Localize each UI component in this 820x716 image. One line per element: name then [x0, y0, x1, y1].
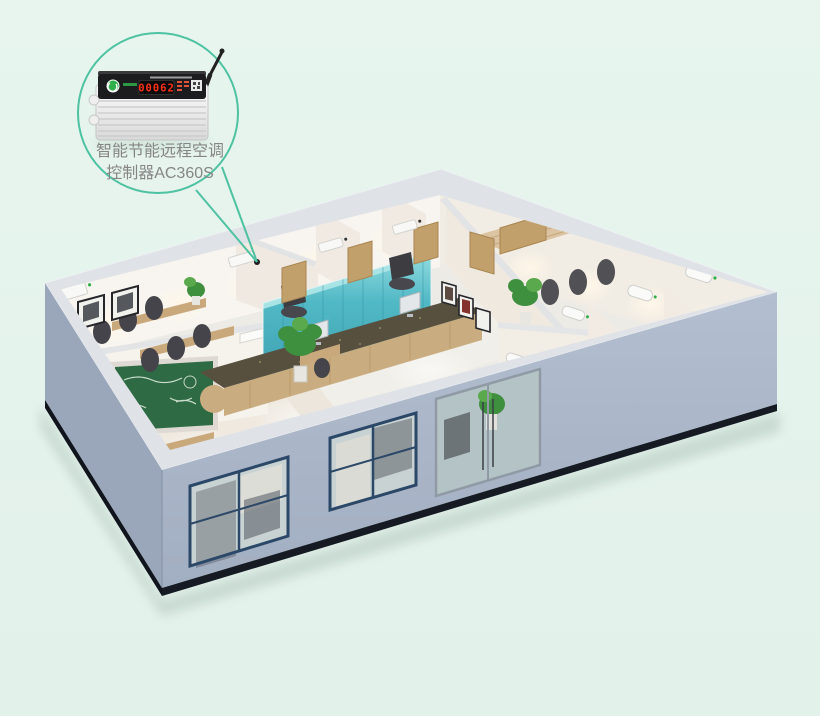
display-value: 00062 [138, 83, 175, 95]
product-scene: 00062 智能节能远程空调 控制器AC360S [0, 0, 820, 716]
qr-code [191, 80, 202, 91]
callout-label-line2: 控制器AC360S [106, 164, 214, 182]
side-knob [89, 115, 99, 125]
floorplan-illustration: 00062 智能节能远程空调 控制器AC360S [0, 0, 820, 716]
office-chair [389, 252, 415, 290]
callout-label-line1: 智能节能远程空调 [96, 142, 224, 160]
device-panel: 00062 [98, 71, 206, 99]
brand-text-mark [123, 83, 137, 86]
side-knob [89, 95, 99, 105]
panel-title-mark [150, 77, 192, 79]
